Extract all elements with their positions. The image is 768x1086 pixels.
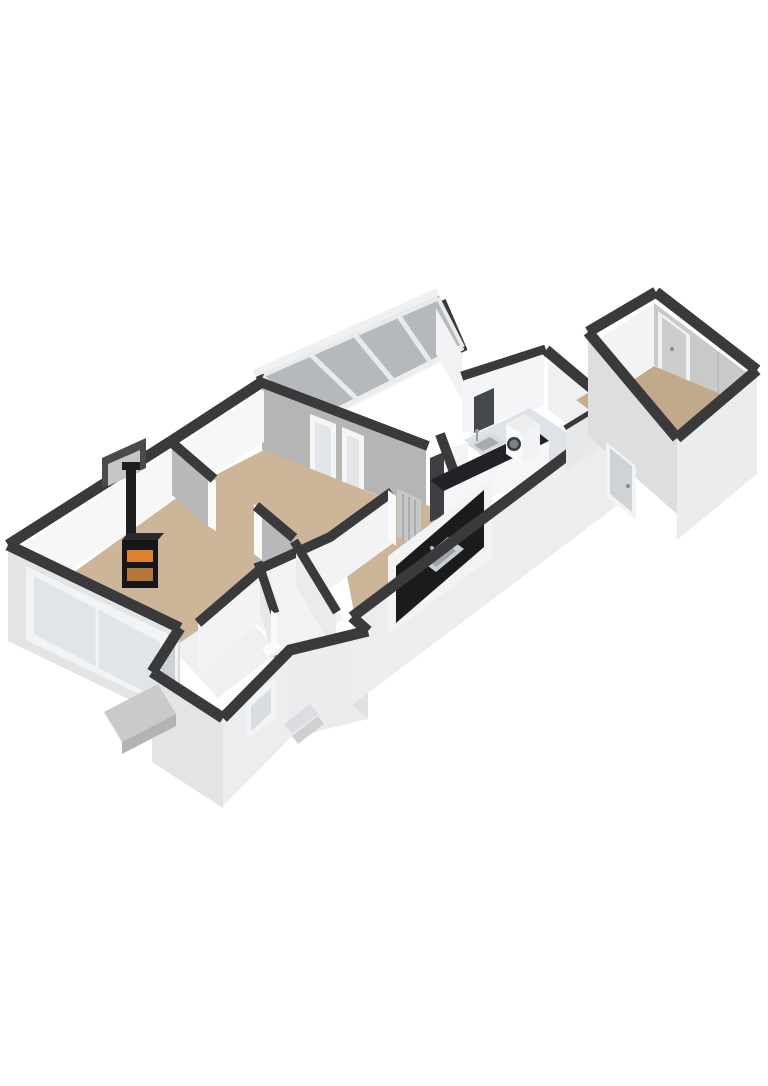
shed-exterior-door-handle [626, 484, 630, 488]
utility-faucet-head [475, 429, 479, 433]
floorplan-svg-canvas [0, 0, 768, 1086]
wood-stove-log-store [127, 568, 153, 581]
shed-interior-door-handle [670, 347, 674, 351]
floorplan-3d-view [0, 0, 768, 1086]
interior-se-wall-jamb [388, 490, 396, 546]
washing-machine-door-glass [510, 440, 519, 449]
stove-flue-pipe [126, 468, 136, 542]
stove-flue-collar [122, 462, 140, 470]
wood-stove-fire-window [127, 550, 153, 562]
wood-stove-top [122, 533, 164, 540]
livingbed-wall-piece1-jamb [208, 476, 216, 531]
